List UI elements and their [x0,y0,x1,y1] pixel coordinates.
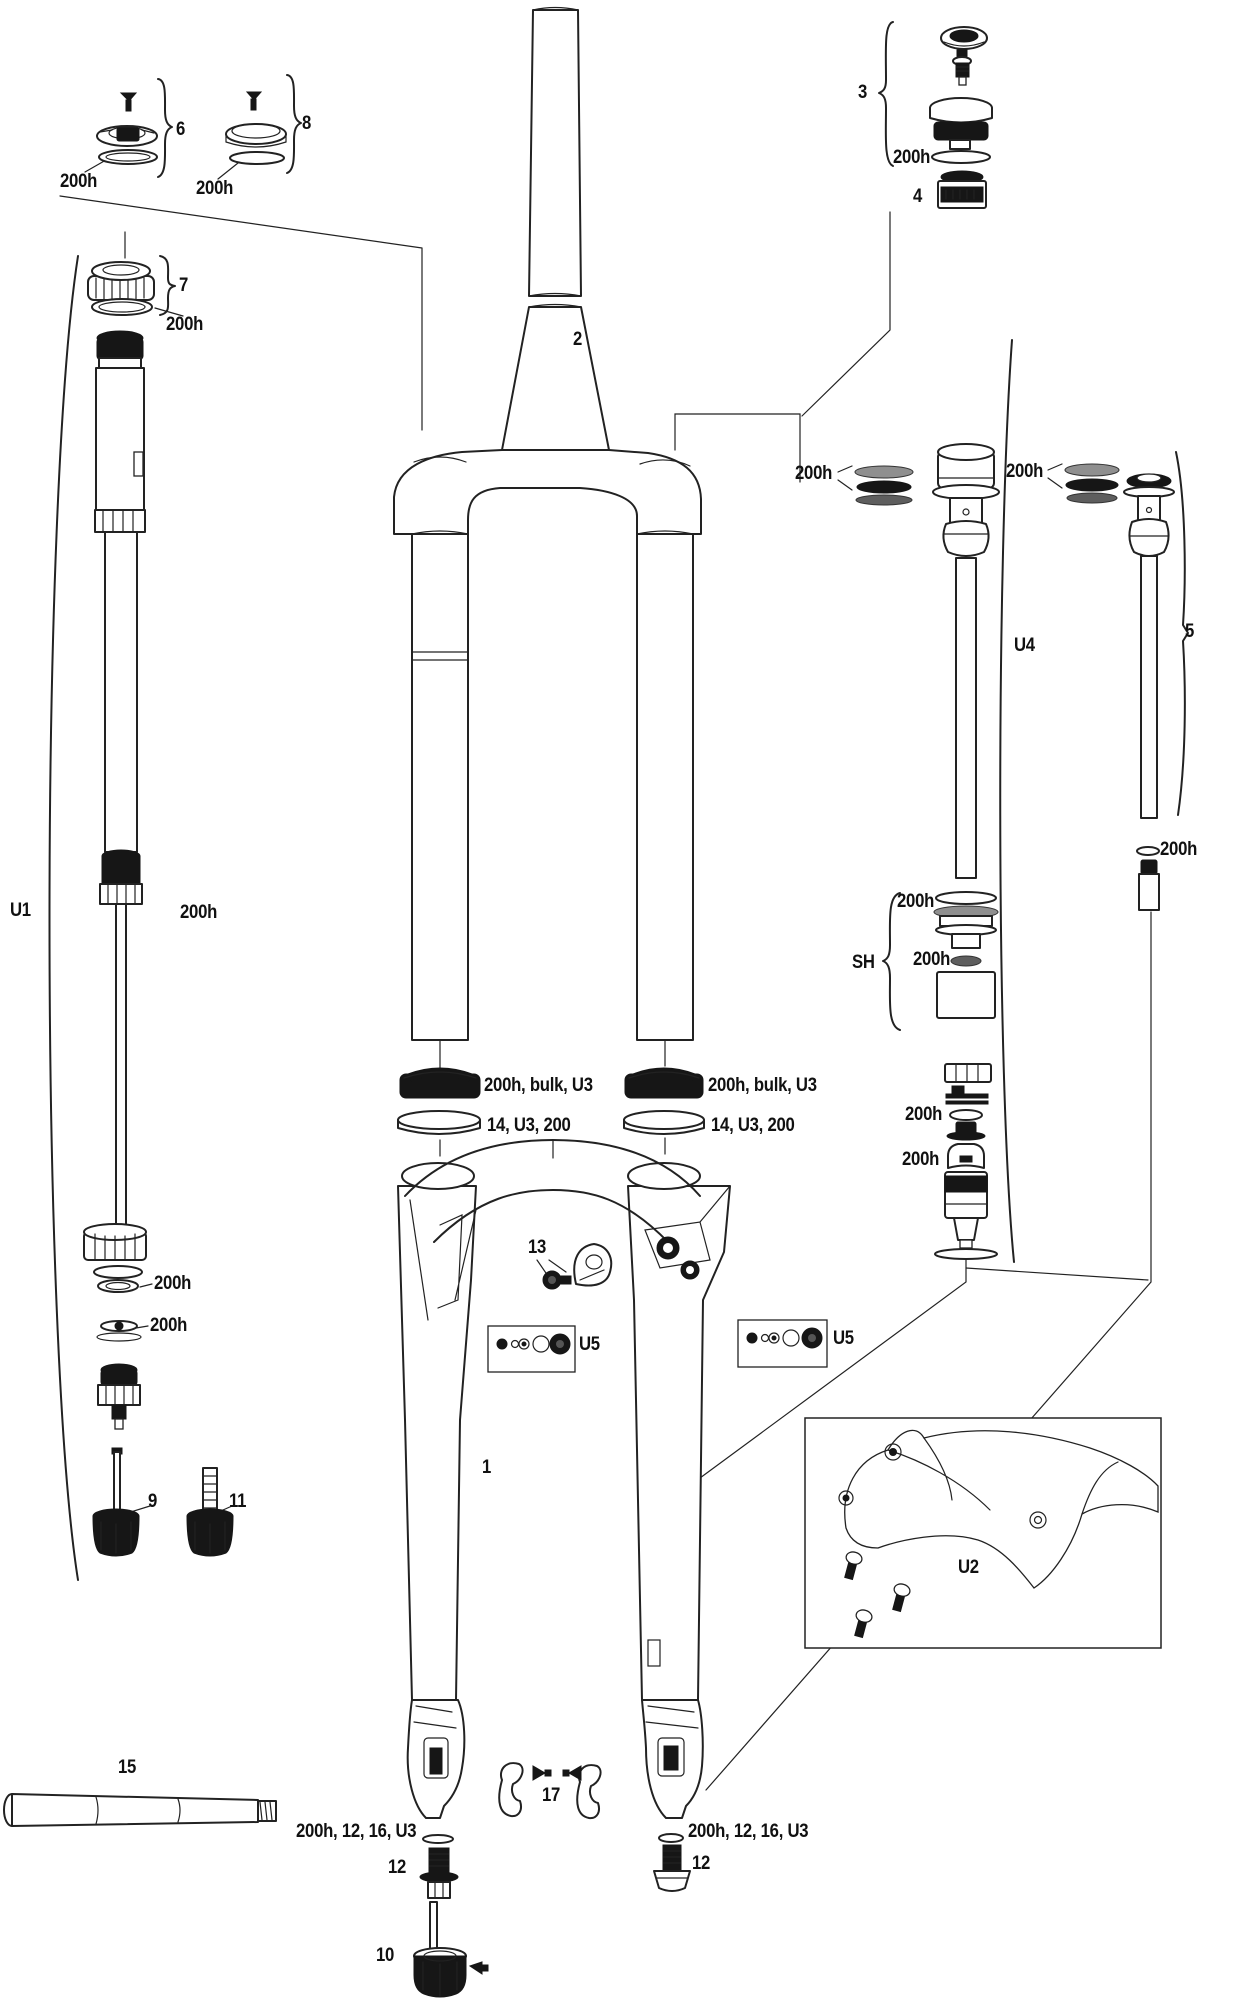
bottomless-token-4 [938,171,986,208]
lower-leg-right [628,1186,730,1700]
adjuster-bolt-11 [187,1468,233,1556]
bracket-7 [160,256,175,315]
label-200h-sealstack-right: 200h [1006,462,1043,481]
air-valve-cap-3 [930,27,992,163]
dust-seal-left [400,1068,480,1098]
label-group-u4: U4 [1014,636,1035,655]
steerer-tube [502,8,609,451]
stanchion-right [637,531,693,1040]
label-200h-damper-nut: 200h [180,903,217,922]
crush-washer-left [423,1835,453,1843]
label-part-15: 15 [118,1758,136,1777]
label-200h-part8: 200h [196,179,233,198]
label-part-4: 4 [913,187,922,206]
bracket-sh [883,893,900,1030]
bracket-3 [879,22,893,166]
label-kit-u5-right: U5 [833,1329,854,1348]
label-200h-hardware-2: 200h [902,1150,939,1169]
rebound-rod-9 [93,1448,139,1556]
label-group-sh: SH [852,953,875,972]
service-kit-u5-right [738,1320,827,1367]
fender-kit-u2 [805,1418,1161,1648]
label-bolt-kit-left: 200h, 12, 16, U3 [296,1822,416,1841]
label-200h-part6: 200h [60,172,97,191]
dropout-right [642,1700,703,1818]
bracket-8 [287,75,301,173]
thru-axle-15 [4,1794,276,1826]
label-dustseal-left: 200h, bulk, U3 [484,1076,593,1095]
label-part-1: 1 [482,1458,491,1477]
label-200h-topout-1: 200h [154,1274,191,1293]
label-part-17: 17 [542,1786,560,1805]
topcap-assembly-6 [97,93,157,164]
bracket-u1 [50,256,79,1580]
air-shaft-u4 [933,444,999,878]
label-part-11: 11 [229,1492,246,1511]
label-200h-part3: 200h [893,148,930,167]
label-part-13: 13 [528,1238,546,1257]
label-200h-sh-ring: 200h [913,950,950,969]
label-dustseal-right: 200h, bulk, U3 [708,1076,817,1095]
label-200h-hardware-1: 200h [905,1105,942,1124]
group-brackets [50,22,1189,1580]
label-foamring-left: 14, U3, 200 [487,1116,571,1135]
diagram-canvas: 6 200h 8 200h 7 200h 3 200h 4 2 200h 200… [0,0,1236,2000]
shaft-bolt-12-left [420,1848,458,1898]
label-kit-u2: U2 [958,1558,979,1577]
bracket-6 [158,79,172,177]
damper-cartridge-u1 [95,331,145,1228]
crown [394,450,701,534]
label-part-2: 2 [573,330,582,349]
label-part-6: 6 [176,120,185,139]
dropout-left [408,1700,465,1818]
adjuster-knob-7 [88,262,154,315]
stanchion-left [412,531,468,1040]
label-part-9: 9 [148,1492,157,1511]
foam-ring-left [398,1111,480,1134]
seal-stack-right [1065,464,1119,503]
label-part-3: 3 [858,83,867,102]
foam-ring-right [624,1111,704,1134]
rebound-knob-10 [414,1902,488,1997]
label-part-5: 5 [1185,622,1194,641]
label-part-8: 8 [302,114,311,133]
clamp-screw-13 [543,1244,611,1289]
topcap-assembly-8 [226,92,286,164]
damper-shaft-hardware [84,1224,146,1429]
service-kit-u5-left [488,1326,575,1372]
lower-leg-left [398,1186,476,1700]
label-bolt-kit-right: 200h, 12, 16, U3 [688,1822,808,1841]
label-part-10: 10 [376,1946,394,1965]
dust-seal-right [625,1068,703,1098]
shaft-hardware-column [935,1064,997,1259]
label-part-7: 7 [179,276,188,295]
label-part-12-left: 12 [388,1858,406,1877]
label-200h-shaftbolt: 200h [1160,840,1197,859]
label-group-u1: U1 [10,901,31,920]
label-200h-topout-2: 200h [150,1316,187,1335]
label-200h-part7: 200h [166,315,203,334]
label-kit-u5-left: U5 [579,1335,600,1354]
label-part-12-right: 12 [692,1854,710,1873]
fork-exploded-art [0,0,1236,2000]
label-200h-sealstack-left: 200h [795,464,832,483]
crush-washer-right [659,1834,683,1842]
shaft-bolt-12-right [654,1845,690,1891]
label-foamring-right: 14, U3, 200 [711,1116,795,1135]
label-200h-sh-oring: 200h [897,892,934,911]
seal-stack-left [855,466,913,505]
lower-legs-assembly [398,1140,730,1700]
